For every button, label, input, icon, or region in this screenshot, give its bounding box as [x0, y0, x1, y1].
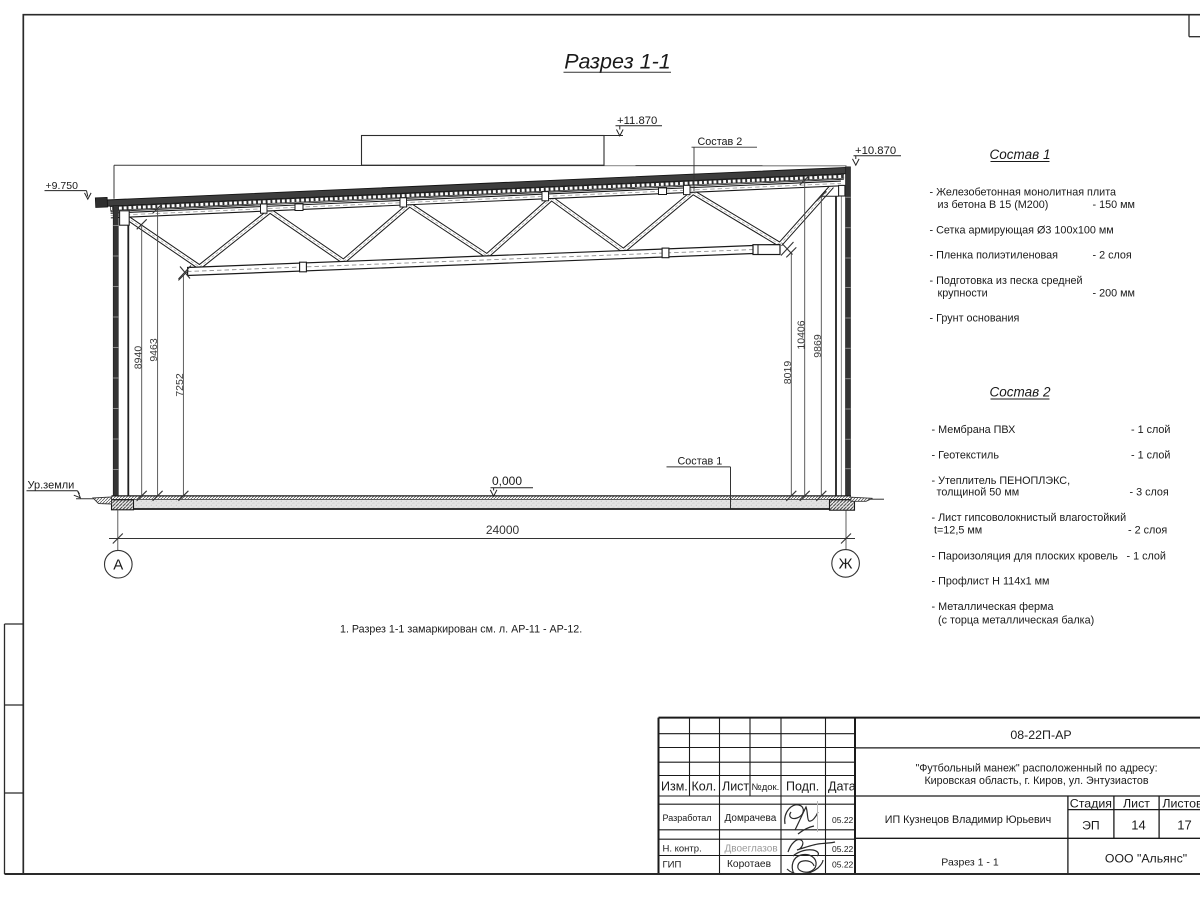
svg-text:9869: 9869 [812, 334, 824, 358]
svg-text:Изм.: Изм. [661, 780, 688, 794]
svg-text:- Металлическая ферма: - Металлическая ферма [932, 601, 1054, 613]
svg-text:Разрез 1 - 1: Разрез 1 - 1 [941, 856, 999, 868]
svg-text:05.22: 05.22 [832, 844, 854, 854]
svg-text:+10.870: +10.870 [855, 145, 896, 157]
svg-text:- Подготовка из песка средней: - Подготовка из песка средней [930, 275, 1083, 287]
svg-text:ООО "Альянс": ООО "Альянс" [1105, 852, 1187, 866]
svg-text:- 150 мм: - 150 мм [1093, 199, 1135, 211]
svg-text:Разработал: Разработал [663, 813, 712, 823]
svg-text:- Мембрана ПВХ: - Мембрана ПВХ [932, 424, 1016, 436]
svg-text:Лист: Лист [1123, 796, 1150, 810]
svg-text:(с торца металлическая балка): (с торца металлическая балка) [938, 614, 1094, 626]
svg-text:крупности: крупности [938, 288, 988, 300]
svg-text:- Пленка полиэтиленовая: - Пленка полиэтиленовая [930, 250, 1059, 262]
svg-text:ЭП: ЭП [1082, 819, 1100, 833]
svg-text:- 1 слой: - 1 слой [1127, 550, 1166, 562]
svg-text:Двоеглазов: Двоеглазов [725, 843, 778, 854]
svg-text:Подп.: Подп. [786, 780, 819, 794]
svg-text:t=12,5 мм: t=12,5 мм [934, 525, 982, 537]
svg-text:№док.: №док. [752, 782, 780, 793]
svg-text:- Грунт основания: - Грунт основания [930, 313, 1020, 325]
svg-text:- 1 слой: - 1 слой [1131, 449, 1170, 461]
svg-text:- Лист гипсоволокнистый влагос: - Лист гипсоволокнистый влагостойкий [932, 512, 1127, 524]
svg-text:- Геотекстиль: - Геотекстиль [932, 449, 1000, 461]
svg-text:- 200 мм: - 200 мм [1093, 288, 1135, 300]
svg-text:Коротаев: Коротаев [727, 859, 771, 870]
svg-text:Разрез 1-1: Разрез 1-1 [564, 49, 671, 73]
svg-text:1. Разрез 1-1 замаркирован см.: 1. Разрез 1-1 замаркирован см. л. АР-11 … [340, 624, 582, 636]
svg-text:17: 17 [1177, 817, 1191, 832]
svg-text:8019: 8019 [782, 361, 794, 385]
svg-text:05.22: 05.22 [832, 815, 854, 825]
svg-text:из бетона В 15 (М200): из бетона В 15 (М200) [938, 199, 1049, 211]
svg-text:05.22: 05.22 [832, 860, 854, 870]
svg-text:Н. контр.: Н. контр. [663, 844, 702, 855]
svg-text:толщиной 50 мм: толщиной 50 мм [937, 486, 1020, 498]
svg-text:Дата: Дата [828, 780, 856, 794]
svg-text:Листов: Листов [1162, 796, 1200, 810]
svg-text:Ж: Ж [839, 556, 853, 573]
svg-text:Состав 2: Состав 2 [990, 384, 1051, 399]
svg-text:Кол.: Кол. [692, 780, 717, 794]
svg-text:Состав 1: Состав 1 [678, 455, 723, 467]
svg-text:14: 14 [1131, 817, 1145, 832]
svg-text:+9.750: +9.750 [46, 180, 79, 192]
svg-text:8940: 8940 [132, 346, 144, 370]
svg-text:"Футбольный манеж" расположенн: "Футбольный манеж" расположенный по адре… [915, 763, 1157, 775]
svg-text:ГИП: ГИП [663, 859, 682, 870]
svg-text:- 2 слоя: - 2 слоя [1093, 250, 1132, 262]
svg-text:Состав 1: Состав 1 [990, 147, 1051, 162]
svg-text:Кировская область, г. Киров, у: Кировская область, г. Киров, ул. Энтузиа… [924, 775, 1148, 787]
svg-text:- Железобетонная монолитная п: - Железобетонная монолитная плита [930, 187, 1117, 199]
svg-text:А: А [113, 556, 123, 573]
svg-text:Состав 2: Состав 2 [698, 136, 743, 148]
svg-text:+11.870: +11.870 [617, 115, 657, 127]
svg-text:08-22П-АР: 08-22П-АР [1010, 728, 1071, 742]
svg-text:24000: 24000 [486, 523, 520, 537]
svg-text:Лист: Лист [722, 780, 749, 794]
svg-text:- Сетка армирующая Ø3 100х100: - Сетка армирующая Ø3 100х100 мм [930, 224, 1114, 236]
svg-text:- 2 слоя: - 2 слоя [1128, 525, 1167, 537]
svg-text:- Утеплитель ПЕНОПЛЭКС,: - Утеплитель ПЕНОПЛЭКС, [932, 475, 1071, 487]
svg-text:7252: 7252 [174, 373, 186, 397]
svg-text:9463: 9463 [148, 338, 160, 362]
svg-text:- Профлист Н 114х1 мм: - Профлист Н 114х1 мм [932, 576, 1050, 588]
svg-text:Стадия: Стадия [1070, 797, 1112, 811]
svg-text:- Пароизоляция для плоских кро: - Пароизоляция для плоских кровель [932, 550, 1119, 562]
svg-text:- 3 слоя: - 3 слоя [1130, 486, 1169, 498]
svg-text:0,000: 0,000 [492, 474, 522, 488]
svg-text:ИП Кузнецов Владимир Юрьевич: ИП Кузнецов Владимир Юрьевич [885, 814, 1051, 826]
svg-text:Домрачева: Домрачева [725, 813, 777, 824]
svg-text:- 1 слой: - 1 слой [1131, 424, 1170, 436]
svg-text:10406: 10406 [795, 320, 807, 349]
svg-text:Ур.земли: Ур.земли [28, 479, 75, 491]
